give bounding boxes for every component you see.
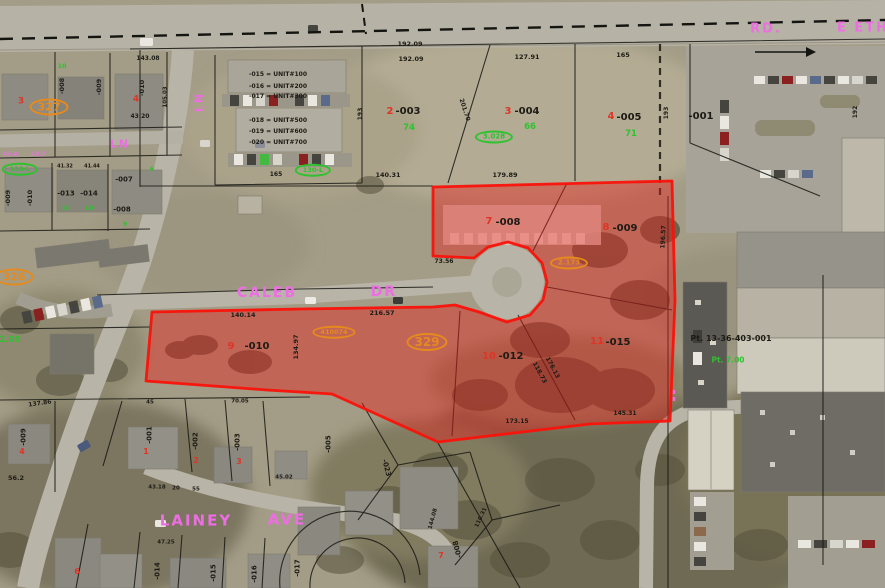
- parcel--001[interactable]: [660, 39, 885, 200]
- aerial-map[interactable]: CALEBDRLAINEYAVERD.E ETHLNLN-003-004-005…: [0, 0, 885, 588]
- parcel-church[interactable]: [668, 196, 885, 588]
- parcel--005[interactable]: [575, 44, 660, 196]
- parcel--003[interactable]: [140, 45, 490, 186]
- aerial-imagery: [0, 0, 885, 588]
